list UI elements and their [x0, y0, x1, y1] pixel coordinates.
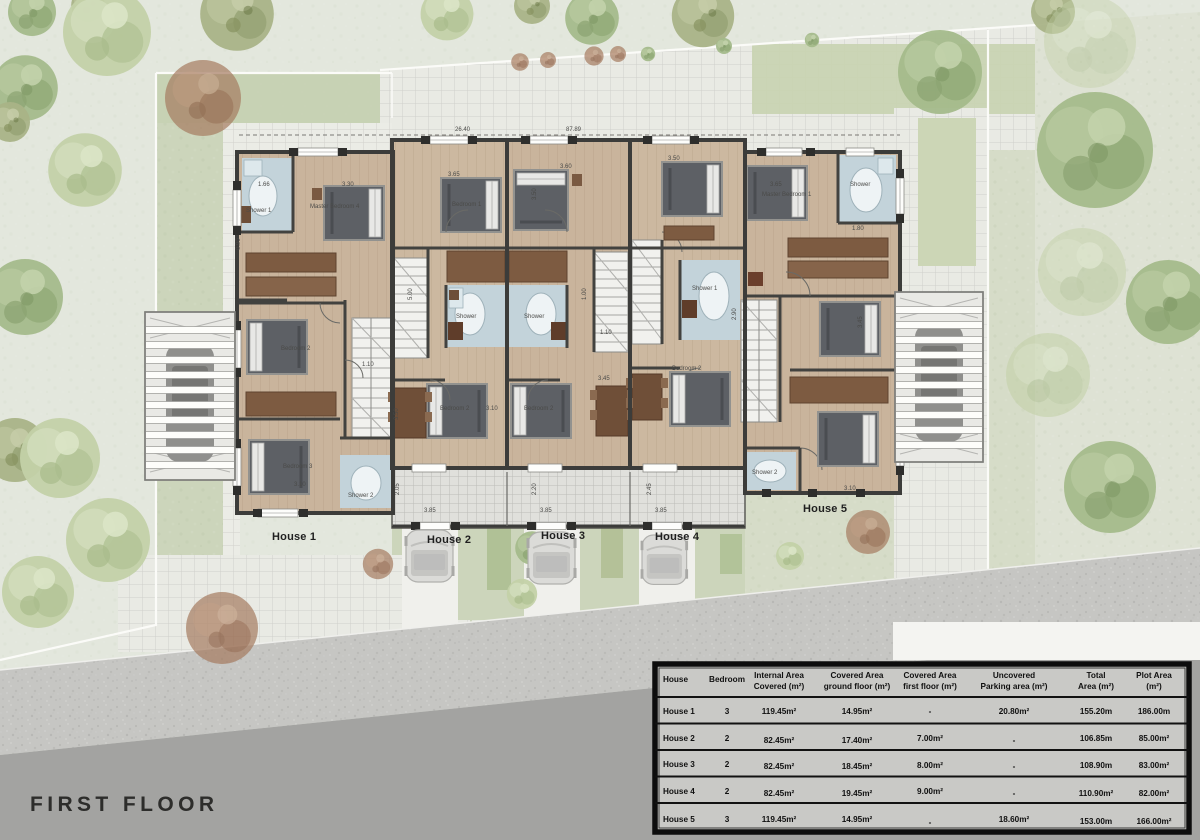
svg-text:83.00m²: 83.00m²	[1139, 761, 1170, 770]
svg-text:3.85: 3.85	[655, 508, 667, 514]
svg-text:82.00m²: 82.00m²	[1139, 789, 1170, 798]
svg-text:3.10: 3.10	[844, 486, 856, 492]
svg-text:Shower: Shower	[456, 314, 476, 320]
svg-text:155.20m: 155.20m	[1080, 707, 1112, 716]
svg-text:Shower: Shower	[524, 314, 544, 320]
svg-text:85.00m²: 85.00m²	[1139, 734, 1170, 743]
svg-text:1.10: 1.10	[362, 362, 374, 368]
svg-text:House 5: House 5	[803, 503, 847, 515]
svg-text:House 3: House 3	[663, 760, 695, 769]
svg-text:House: House	[663, 675, 688, 684]
svg-text:House 4: House 4	[663, 787, 695, 796]
svg-text:166.00m²: 166.00m²	[1136, 817, 1171, 826]
svg-text:Plot Area: Plot Area	[1136, 671, 1172, 680]
svg-text:Bedroom 2: Bedroom 2	[440, 406, 470, 412]
svg-text:19.45m²: 19.45m²	[842, 789, 873, 798]
svg-text:House 1: House 1	[272, 531, 316, 543]
svg-text:2.90: 2.90	[732, 308, 738, 320]
svg-text:-: -	[929, 707, 932, 716]
svg-text:2.05: 2.05	[395, 483, 401, 495]
svg-text:3.65: 3.65	[448, 172, 460, 178]
svg-text:Bedroom 2: Bedroom 2	[281, 346, 311, 352]
svg-text:House 2: House 2	[663, 734, 695, 743]
svg-text:20.80m²: 20.80m²	[999, 707, 1030, 716]
svg-text:2.45: 2.45	[647, 483, 653, 495]
svg-text:18.45m²: 18.45m²	[842, 762, 873, 771]
svg-text:26.40: 26.40	[455, 127, 471, 133]
svg-text:-: -	[929, 818, 932, 827]
svg-text:3.10: 3.10	[486, 406, 498, 412]
svg-text:119.45m²: 119.45m²	[762, 707, 797, 716]
svg-text:14.95m²: 14.95m²	[842, 815, 873, 824]
svg-text:18.60m²: 18.60m²	[999, 815, 1030, 824]
svg-text:3.45: 3.45	[858, 316, 864, 328]
svg-text:House 4: House 4	[655, 531, 700, 543]
svg-text:186.00m: 186.00m	[1138, 707, 1170, 716]
svg-text:House 3: House 3	[541, 530, 585, 542]
svg-text:Shower 2: Shower 2	[348, 493, 374, 499]
svg-text:Shower 1: Shower 1	[692, 286, 718, 292]
svg-text:3.30: 3.30	[342, 182, 354, 188]
svg-text:9.00m²: 9.00m²	[917, 787, 943, 796]
svg-text:3.10: 3.10	[294, 482, 306, 488]
svg-text:1.66: 1.66	[258, 182, 270, 188]
svg-text:2: 2	[725, 760, 730, 769]
svg-text:153.00m: 153.00m	[1080, 817, 1112, 826]
svg-text:Covered Area: Covered Area	[831, 671, 884, 680]
svg-text:Total: Total	[1087, 671, 1106, 680]
svg-text:3.85: 3.85	[424, 508, 436, 514]
svg-text:3.50: 3.50	[668, 156, 680, 162]
svg-text:108.90m: 108.90m	[1080, 761, 1112, 770]
svg-text:1.00: 1.00	[582, 288, 588, 300]
svg-text:House 1: House 1	[663, 707, 695, 716]
svg-text:Covered Area: Covered Area	[904, 671, 957, 680]
svg-text:Internal Area: Internal Area	[754, 671, 804, 680]
svg-text:106.85m: 106.85m	[1080, 734, 1112, 743]
svg-text:Covered (m²): Covered (m²)	[754, 682, 805, 691]
svg-text:FIRST FLOOR: FIRST FLOOR	[30, 793, 218, 816]
svg-text:5.00: 5.00	[408, 288, 414, 300]
svg-text:ground floor (m²): ground floor (m²)	[824, 682, 891, 691]
svg-text:2.20: 2.20	[532, 483, 538, 495]
svg-text:Bedroom 2: Bedroom 2	[524, 406, 554, 412]
svg-text:119.45m²: 119.45m²	[762, 815, 797, 824]
svg-text:Bedroom 2: Bedroom 2	[672, 366, 702, 372]
svg-text:82.45m²: 82.45m²	[764, 789, 795, 798]
svg-text:Bedroom: Bedroom	[709, 675, 745, 684]
svg-text:Area (m²): Area (m²)	[1078, 682, 1114, 691]
svg-text:0.90: 0.90	[236, 238, 242, 250]
svg-text:House 5: House 5	[663, 815, 695, 824]
svg-text:Master Bedroom 1: Master Bedroom 1	[762, 192, 812, 198]
svg-text:2: 2	[725, 787, 730, 796]
svg-text:7.00m²: 7.00m²	[917, 734, 943, 743]
svg-text:82.45m²: 82.45m²	[764, 736, 795, 745]
svg-text:1.10: 1.10	[600, 330, 612, 336]
svg-text:3.45: 3.45	[598, 376, 610, 382]
svg-text:3: 3	[725, 815, 730, 824]
svg-text:-: -	[1013, 789, 1016, 798]
svg-text:3.50: 3.50	[532, 188, 538, 200]
svg-text:Bedroom 3: Bedroom 3	[283, 464, 313, 470]
svg-text:14.95m²: 14.95m²	[842, 707, 873, 716]
svg-text:Shower 1: Shower 1	[246, 208, 272, 214]
svg-text:110.90m²: 110.90m²	[1079, 789, 1114, 798]
svg-text:Parking area (m²): Parking area (m²)	[981, 682, 1048, 691]
svg-text:Bedroom 1: Bedroom 1	[452, 202, 482, 208]
svg-text:17.40m²: 17.40m²	[842, 736, 873, 745]
svg-text:Uncovered: Uncovered	[993, 671, 1035, 680]
svg-text:-: -	[1013, 736, 1016, 745]
svg-text:87.89: 87.89	[566, 127, 582, 133]
svg-text:(m²): (m²)	[1146, 682, 1162, 691]
svg-text:3.85: 3.85	[540, 508, 552, 514]
svg-text:82.45m²: 82.45m²	[764, 762, 795, 771]
svg-text:House 2: House 2	[427, 534, 471, 546]
svg-text:3.65: 3.65	[770, 182, 782, 188]
svg-text:3.50: 3.50	[394, 408, 400, 420]
svg-text:Shower 2: Shower 2	[752, 470, 778, 476]
svg-text:3: 3	[725, 707, 730, 716]
svg-text:3.60: 3.60	[560, 164, 572, 170]
svg-text:-: -	[1013, 762, 1016, 771]
svg-text:Shower: Shower	[850, 182, 870, 188]
svg-text:first floor (m²): first floor (m²)	[903, 682, 957, 691]
svg-text:1.80: 1.80	[852, 226, 864, 232]
svg-text:8.00m²: 8.00m²	[917, 761, 943, 770]
svg-text:2: 2	[725, 734, 730, 743]
svg-text:Master Bedroom 4: Master Bedroom 4	[310, 204, 360, 210]
